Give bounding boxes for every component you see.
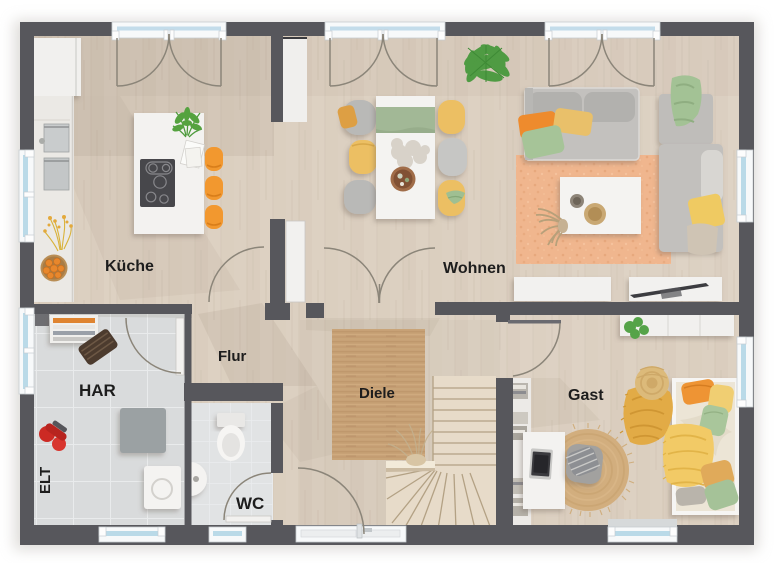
svg-text:Wohnen: Wohnen xyxy=(443,260,506,277)
svg-text:Flur: Flur xyxy=(218,348,246,365)
svg-text:Gast: Gast xyxy=(568,387,604,404)
svg-text:Küche: Küche xyxy=(105,258,154,275)
svg-text:ELT: ELT xyxy=(37,467,54,494)
svg-text:Diele: Diele xyxy=(359,385,395,402)
svg-text:HAR: HAR xyxy=(79,381,116,400)
svg-text:WC: WC xyxy=(236,494,264,513)
